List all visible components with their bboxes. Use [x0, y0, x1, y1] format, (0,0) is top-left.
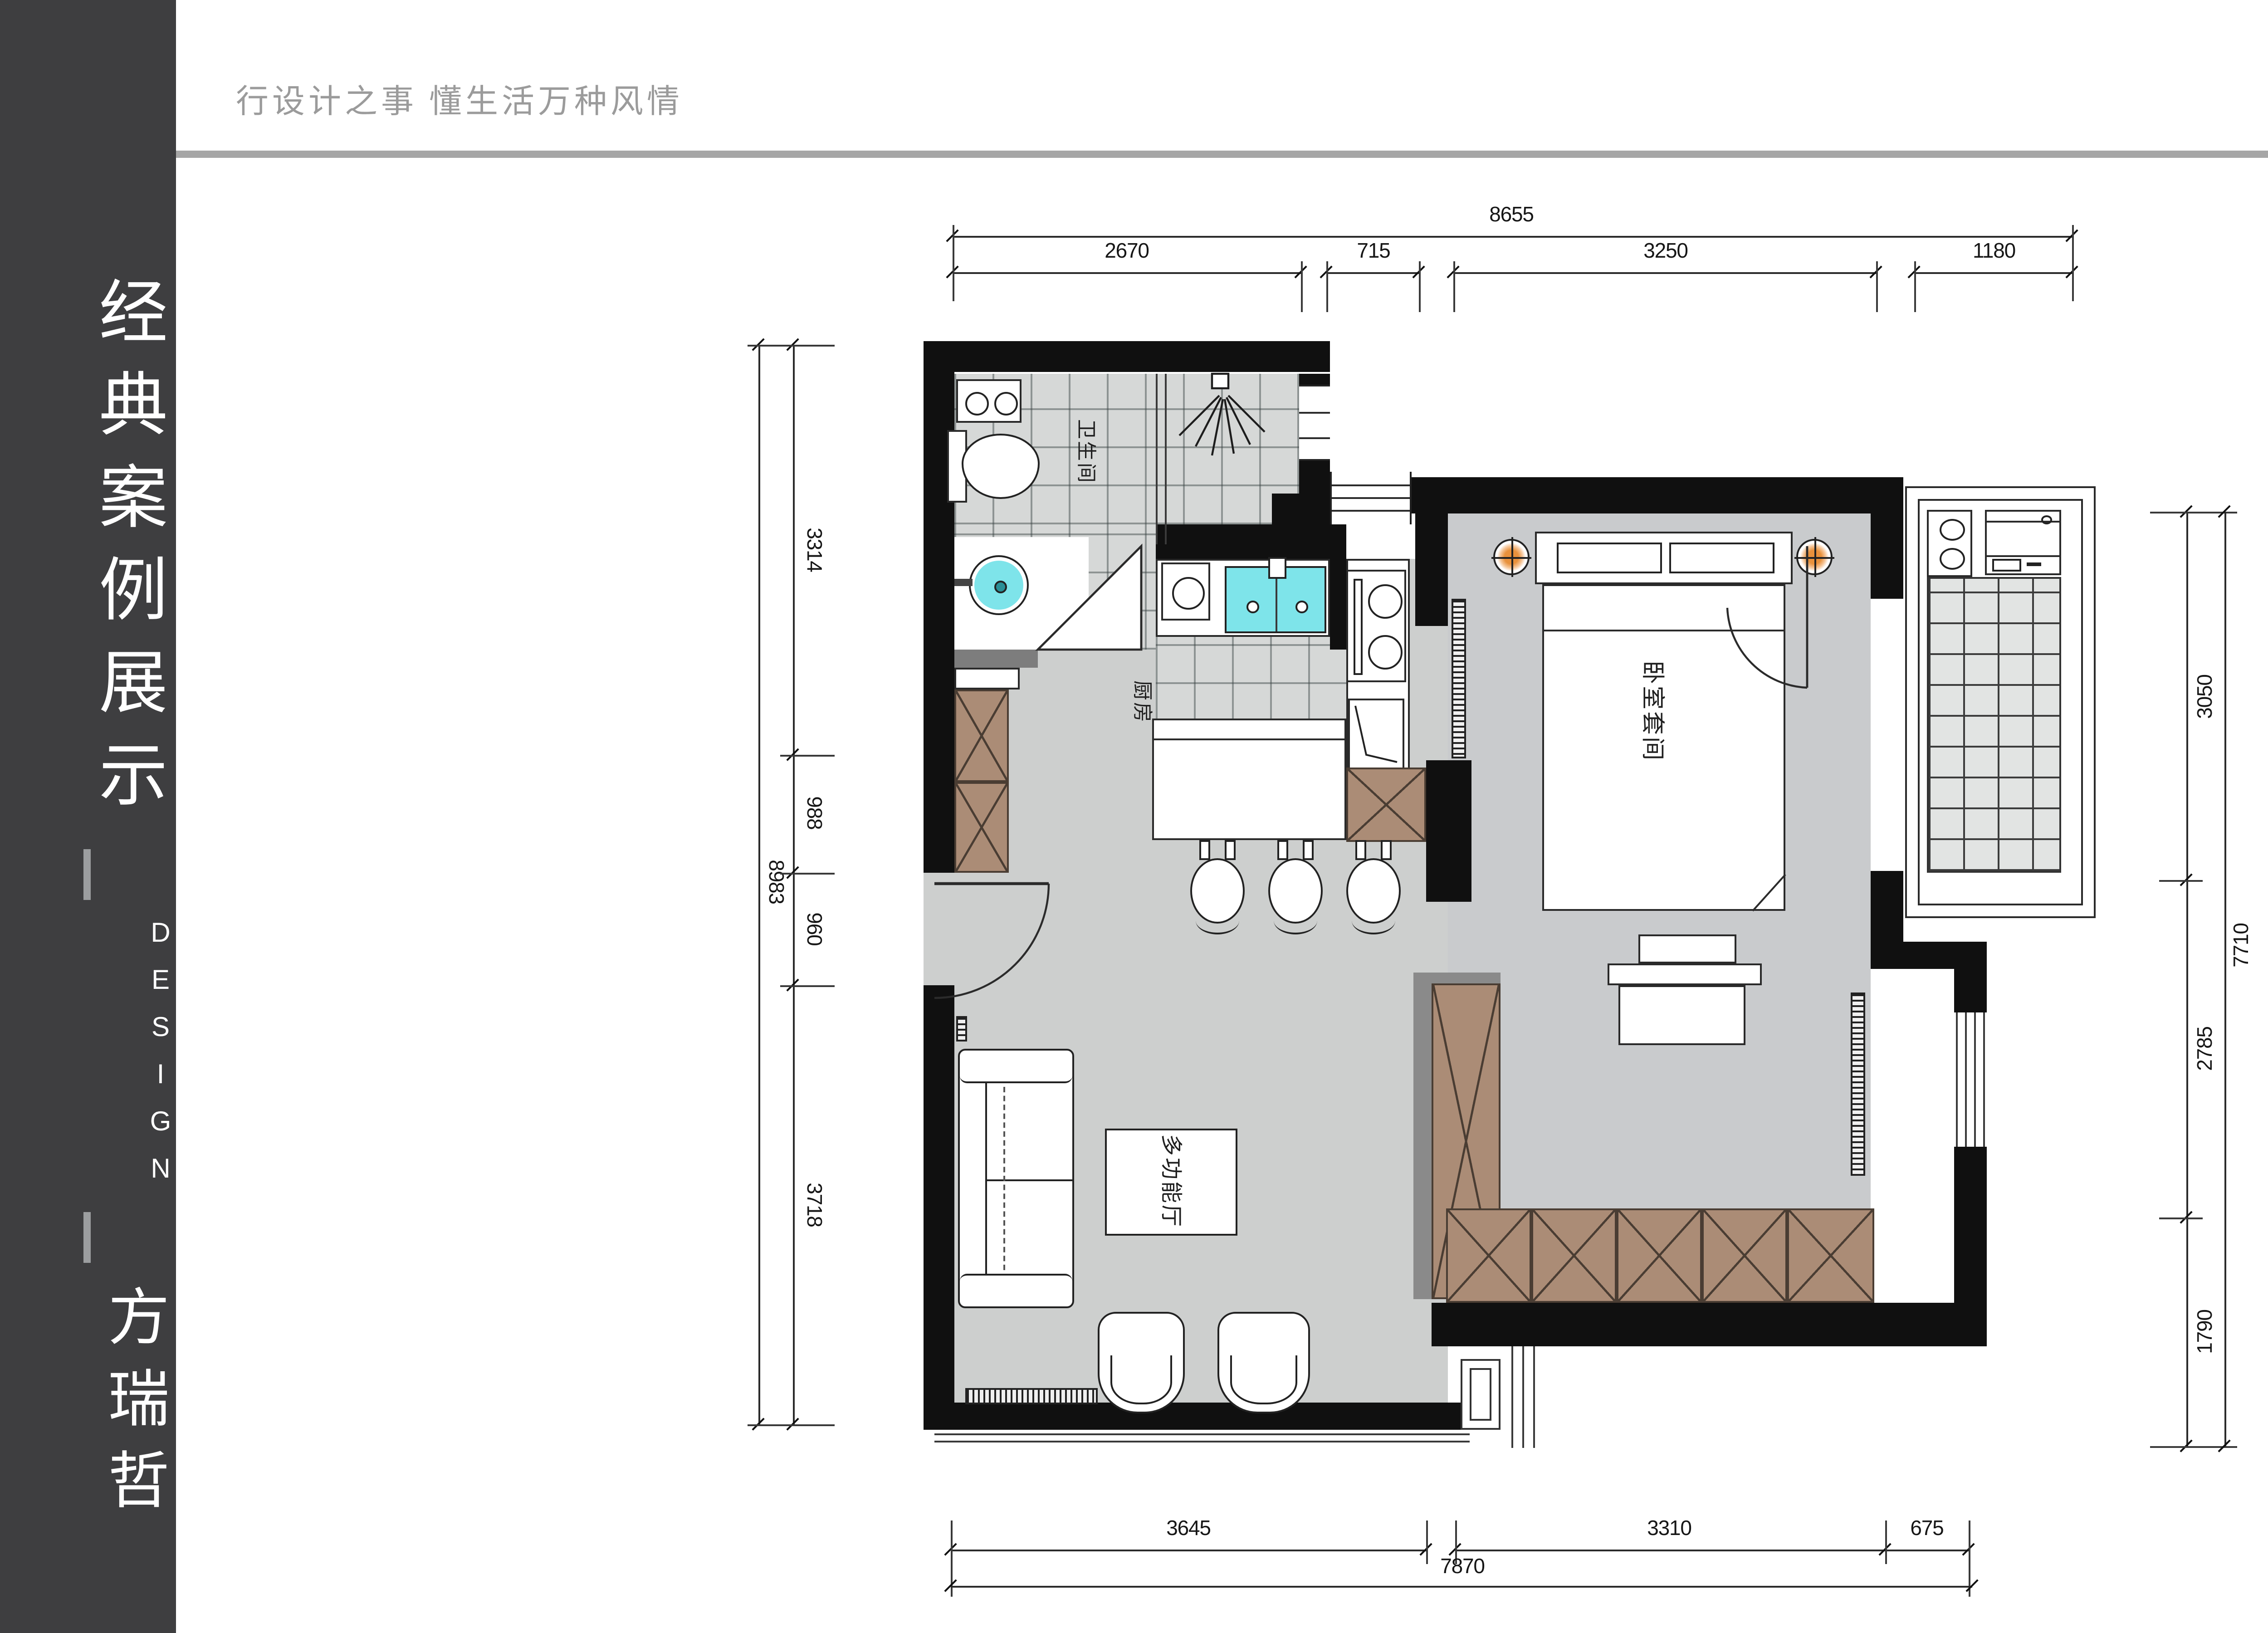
- page: 经典案例展示 DESIGN 方瑞哲 行设计之事 懂生活万种风情 【梵高|先生】: [0, 0, 2268, 1633]
- burner-2: [1368, 635, 1403, 670]
- window-715-l3: [1332, 510, 1410, 512]
- window-715-l1: [1332, 484, 1410, 486]
- sofa-cushion-line: [987, 1179, 1072, 1181]
- wardrobe-door: [1702, 1208, 1787, 1303]
- wit: [2159, 880, 2203, 882]
- dim-bot-overall: 7870: [1440, 1557, 1485, 1579]
- basin-drain: [994, 581, 1007, 593]
- kitchen-sink: [1225, 566, 1326, 633]
- basin: [971, 557, 1027, 613]
- dim-top-line2b: [1326, 272, 1419, 274]
- wall-right-a: [1954, 969, 1987, 1012]
- dim-bot-seg-1: 3645: [1166, 1519, 1211, 1540]
- armchair-1: [1098, 1312, 1185, 1413]
- stool-leg: [1381, 840, 1392, 860]
- desk-chair: [1638, 934, 1736, 963]
- wit: [748, 345, 835, 347]
- wall-bedroom-bottom: [1432, 1303, 1987, 1346]
- headboard-panel-2: [1669, 543, 1774, 573]
- header-brand: 【梵高|先生】: [2255, 69, 2268, 134]
- flue-circle: [1172, 577, 1205, 610]
- wardrobe-back-cap: [1413, 973, 1501, 983]
- sofa: [958, 1049, 1074, 1308]
- stool-leg: [1303, 840, 1314, 860]
- wall-bottom-living: [924, 1403, 1477, 1430]
- dim-right-inner: [2186, 512, 2189, 1446]
- header-divider: [176, 151, 2268, 158]
- entry-shelf: [954, 668, 1020, 689]
- sidebar-title: 经典案例展示: [0, 276, 176, 831]
- fridge: [1348, 699, 1404, 769]
- wardrobe-door: [1531, 1208, 1617, 1303]
- gas-stove: [1346, 570, 1406, 682]
- wardrobe-horizontal: [1446, 1208, 1874, 1303]
- shoe-cabinet-x1: [954, 689, 1009, 782]
- wit: [1326, 261, 1328, 312]
- bath-window-line: [1299, 412, 1330, 414]
- dim-left-seg-3: 960: [802, 912, 824, 945]
- kitchen-cabinet-x: [1346, 768, 1426, 842]
- dim-top-seg-4: 1180: [1973, 241, 2015, 263]
- kitchen-flue: [1161, 562, 1210, 621]
- radiator-corridor: [1452, 599, 1466, 758]
- sink-drain-2: [1295, 601, 1308, 613]
- headboard-panel-1: [1557, 543, 1662, 573]
- wit: [1914, 261, 1916, 312]
- sidebar-design-word: DESIGN: [0, 918, 176, 1201]
- dim-right-seg-1: 3050: [2195, 675, 2217, 719]
- wall-bedroom-top: [1412, 477, 1903, 513]
- corner-window: [1461, 1359, 1501, 1430]
- balcony-tiles: [1927, 577, 2061, 873]
- wall-below-balcony: [1903, 942, 1987, 969]
- desk-top: [1608, 963, 1762, 985]
- stove-panel: [1354, 579, 1363, 675]
- wall-kitchen-top: [1156, 524, 1330, 559]
- bed-sheet-line: [1544, 630, 1784, 631]
- brw-l4: [1983, 1012, 1985, 1147]
- wardrobe-door: [1446, 1208, 1531, 1303]
- sink-drain-1: [1246, 601, 1259, 613]
- wit: [1969, 1521, 1970, 1597]
- basin-faucet: [954, 579, 973, 586]
- dim-left-inner: [793, 345, 795, 1424]
- balcony-sink-bowl-2: [1940, 548, 1965, 570]
- sofa-back: [960, 1083, 987, 1274]
- wall-left-upper: [924, 341, 954, 873]
- bedside-lamp-right: [1796, 539, 1833, 575]
- sidebar-divider-bottom: [83, 1212, 91, 1263]
- bath-window: [1299, 385, 1330, 461]
- bed-headboard: [1535, 532, 1793, 584]
- island-edge: [1154, 738, 1344, 740]
- sofa-arm-bottom: [960, 1274, 1072, 1306]
- dim-left-seg-4: 3718: [802, 1183, 824, 1227]
- bedroom-label: 卧室套间: [1637, 660, 1672, 762]
- wit: [1426, 1521, 1428, 1564]
- balcony-washer: [1985, 510, 2061, 575]
- corner-window-inner: [1470, 1368, 1491, 1421]
- dim-left-overall: 8983: [764, 860, 786, 904]
- bedside-lamp-left: [1493, 539, 1530, 575]
- wall-column: [1426, 760, 1471, 902]
- wardrobe-back-strip: [1413, 983, 1432, 1299]
- dim-right-seg-2: 2785: [2195, 1027, 2217, 1071]
- dim-bot-line1b: [1455, 1550, 1969, 1552]
- below-bed-line2: [1522, 1346, 1524, 1448]
- wm-knob-1: [965, 392, 989, 416]
- brw-l2: [1965, 1012, 1967, 1147]
- wall-balcony-corner: [1871, 871, 1903, 969]
- dim-left-seg-2: 988: [802, 796, 824, 829]
- dim-top-seg-1: 2670: [1105, 241, 1149, 263]
- below-bed-line1: [1511, 1346, 1513, 1448]
- kitchen-island: [1152, 719, 1346, 840]
- sofa-dash: [1003, 1087, 1007, 1270]
- stool-leg: [1199, 840, 1210, 860]
- wall-bath-kitchen-stub: [1330, 524, 1346, 650]
- shower-glass-1: [1156, 374, 1158, 544]
- brw-l3: [1974, 1012, 1976, 1147]
- dim-top-overall: 8655: [1489, 205, 1534, 227]
- stool-leg: [1355, 840, 1366, 860]
- bath-window-line2: [1299, 437, 1330, 439]
- bathroom-label: 卫生间: [1072, 419, 1101, 484]
- bottom-sill-2: [934, 1441, 1470, 1442]
- wit: [780, 755, 835, 757]
- bedroom-right-window: [1954, 1012, 1987, 1147]
- wm-knob-2: [994, 392, 1018, 416]
- wit: [1453, 261, 1455, 312]
- dim-bot-line1a: [951, 1550, 1426, 1552]
- wall-right-b: [1954, 1147, 1987, 1346]
- entry-floor: [924, 873, 954, 985]
- dim-top-line2a: [953, 272, 1301, 274]
- dim-bot-line2: [951, 1586, 1972, 1589]
- wall-bath-step: [1272, 494, 1330, 524]
- dim-left-outer: [758, 345, 761, 1424]
- hall-label: 多功能厅: [1157, 1134, 1188, 1228]
- wit: [2072, 225, 2074, 301]
- wit: [1419, 261, 1421, 312]
- desk-body: [1618, 985, 1745, 1045]
- wardrobe-door: [1617, 1208, 1702, 1303]
- bar-stool-1: [1190, 858, 1245, 924]
- header-slogan: 行设计之事 懂生活万种风情: [236, 76, 683, 123]
- wit: [953, 225, 954, 301]
- wit: [780, 873, 835, 875]
- window-715: [1330, 472, 1412, 524]
- washer-line2: [1987, 555, 2059, 557]
- radiator-living: [965, 1388, 1098, 1404]
- bath-threshold: [954, 650, 1038, 668]
- wall-kitchen-bedroom-divider: [1415, 513, 1448, 626]
- stool-leg: [1225, 840, 1236, 860]
- wit: [1876, 261, 1878, 312]
- wit: [748, 1424, 835, 1426]
- brw-l1: [1956, 1012, 1958, 1147]
- dim-top-line1: [953, 236, 2072, 239]
- dim-bot-seg-2: 3310: [1647, 1519, 1691, 1540]
- stool-leg: [1277, 840, 1288, 860]
- window-715-l2: [1332, 497, 1410, 499]
- fridge-fold-lines: [1350, 700, 1406, 771]
- sink-faucet: [1268, 557, 1286, 579]
- dim-right-outer: [2224, 512, 2227, 1446]
- washer-control: [1992, 559, 2021, 572]
- wit: [1301, 261, 1303, 312]
- dim-top-seg-3: 3250: [1643, 241, 1688, 263]
- wall-bedroom-topright-chunk: [1871, 513, 1903, 599]
- dim-right-seg-3: 1790: [2195, 1310, 2217, 1354]
- bar-stool-3: [1346, 858, 1401, 924]
- shower-glass-2: [1165, 374, 1167, 544]
- bottom-sill-1: [934, 1433, 1470, 1435]
- below-bed-line3: [1533, 1346, 1535, 1448]
- wit: [1885, 1521, 1887, 1564]
- burner-1: [1368, 584, 1403, 619]
- wall-bath-top: [924, 341, 1330, 372]
- wall-left-lower: [924, 985, 954, 1430]
- wardrobe-door: [1787, 1208, 1874, 1303]
- bar-stool-2: [1268, 858, 1323, 924]
- dim-top-line2c: [1453, 272, 1876, 274]
- balcony-sink-bowl-1: [1940, 519, 1965, 541]
- dim-top-seg-2: 715: [1357, 241, 1390, 263]
- sidebar-divider-top: [83, 849, 91, 900]
- dim-left-seg-1: 3314: [802, 528, 824, 572]
- sidebar-author: 方瑞哲: [0, 1285, 176, 1530]
- armchair-2: [1217, 1312, 1310, 1413]
- sidebar: 经典案例展示 DESIGN 方瑞哲: [0, 0, 176, 1633]
- kitchen-label: 厨房: [1129, 680, 1158, 724]
- wit: [780, 985, 835, 987]
- balcony-sink-unit: [1927, 510, 1972, 577]
- entry-pipe: [956, 1016, 967, 1041]
- washing-machine: [956, 379, 1022, 423]
- wit: [2159, 1217, 2203, 1219]
- radiator-bedroom: [1851, 993, 1865, 1176]
- dim-bot-seg-3: 675: [1910, 1519, 1943, 1540]
- washer-knob: [2027, 562, 2041, 566]
- sofa-arm-top: [960, 1051, 1072, 1083]
- dim-right-overall: 7710: [2232, 923, 2253, 968]
- dim-top-line2d: [1914, 272, 2072, 274]
- washer-dot: [2041, 515, 2052, 524]
- shoe-cabinet-x2: [954, 782, 1009, 873]
